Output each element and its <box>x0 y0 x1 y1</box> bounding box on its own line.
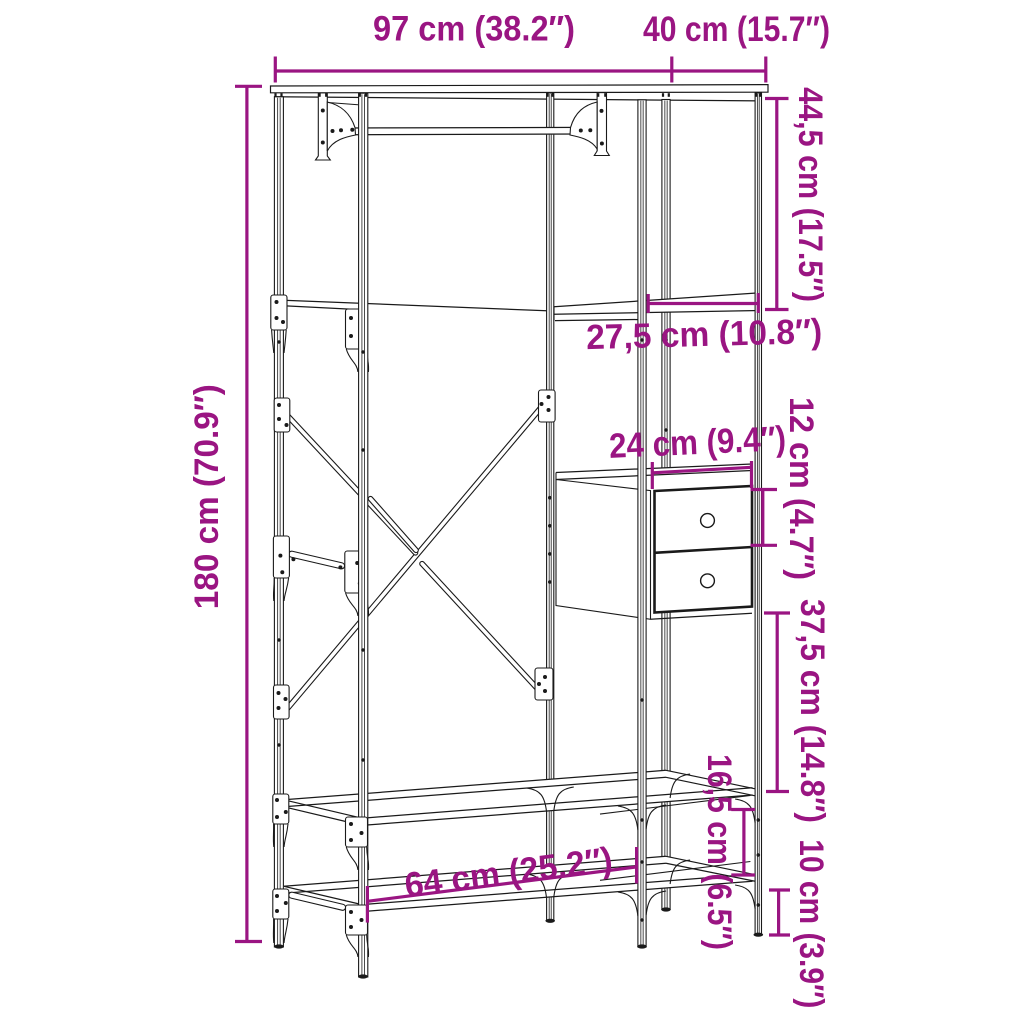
svg-text:44,5 cm (17.5″): 44,5 cm (17.5″) <box>791 87 829 302</box>
svg-text:24 cm (9.4″): 24 cm (9.4″) <box>608 419 787 466</box>
svg-text:27,5 cm (10.8″): 27,5 cm (10.8″) <box>586 312 823 357</box>
svg-text:10 cm (3.9″): 10 cm (3.9″) <box>792 839 830 1008</box>
svg-text:12 cm (4.7″): 12 cm (4.7″) <box>782 397 820 580</box>
svg-text:180 cm (70.9″): 180 cm (70.9″) <box>188 384 226 609</box>
svg-text:37,5 cm (14.8″): 37,5 cm (14.8″) <box>793 599 831 823</box>
svg-text:97 cm (38.2″): 97 cm (38.2″) <box>373 10 575 49</box>
svg-text:40 cm (15.7″): 40 cm (15.7″) <box>643 10 830 49</box>
svg-text:16,5 cm (6.5″): 16,5 cm (6.5″) <box>700 754 738 950</box>
